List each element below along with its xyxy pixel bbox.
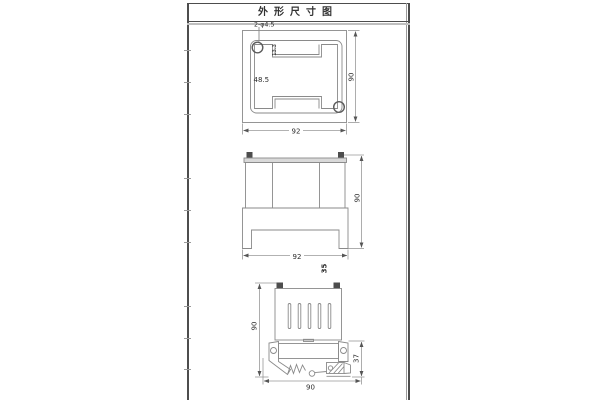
clip-spring-loop	[309, 371, 315, 377]
top-notch-inner-line	[275, 45, 319, 55]
top-view	[243, 27, 347, 123]
mount-foot-left	[277, 283, 284, 289]
front-view	[243, 152, 349, 249]
front-view-dimensions	[243, 155, 365, 260]
mount-foot-left	[247, 152, 253, 158]
slot-depth-label: 13.3	[272, 44, 278, 56]
latch-pin	[328, 366, 332, 370]
hole-callout-label: 2-φ4.5	[254, 22, 274, 29]
vent-slot	[328, 304, 331, 329]
mounting-hole-top-left	[252, 42, 263, 53]
inner-dim-label: 48.5	[254, 76, 270, 84]
mount-foot-right	[338, 152, 344, 158]
drawing-canvas: 2-φ4.5 13.3 48.5 90 92 90 92 35	[0, 0, 600, 400]
clip-screw-right	[341, 348, 347, 354]
clip-screw-left	[271, 348, 277, 354]
latch-hatch	[329, 363, 339, 373]
latch-hatch	[334, 364, 343, 374]
front-view-height-label: 90	[354, 194, 362, 203]
latch-hook	[344, 363, 351, 374]
clip-spring-link	[315, 372, 327, 373]
side-view-clip-height-label: 37	[353, 354, 361, 363]
vent-slot	[308, 304, 311, 329]
mount-foot-right	[334, 283, 341, 289]
side-view-height-label: 90	[251, 322, 259, 331]
side-view	[269, 283, 351, 377]
din-rail-band	[279, 344, 339, 359]
bottom-notch-inner-line	[275, 99, 319, 109]
front-body	[246, 163, 346, 209]
ventilation-slots	[288, 304, 331, 329]
vent-slot	[288, 304, 291, 329]
top-view-width-label: 92	[292, 128, 301, 136]
mounting-hole-bottom-right	[334, 102, 345, 113]
vent-slot	[298, 304, 301, 329]
front-view-width-label: 92	[293, 253, 302, 261]
clip-bracket-left	[269, 342, 291, 375]
side-view-dimensions	[255, 283, 365, 385]
front-top-strip	[244, 158, 347, 163]
side-view-width-label: 90	[306, 384, 315, 392]
top-view-height-label: 90	[348, 73, 356, 82]
front-base	[243, 208, 349, 249]
front-view-depth-label: 35	[321, 264, 329, 274]
vent-slot	[318, 304, 321, 329]
